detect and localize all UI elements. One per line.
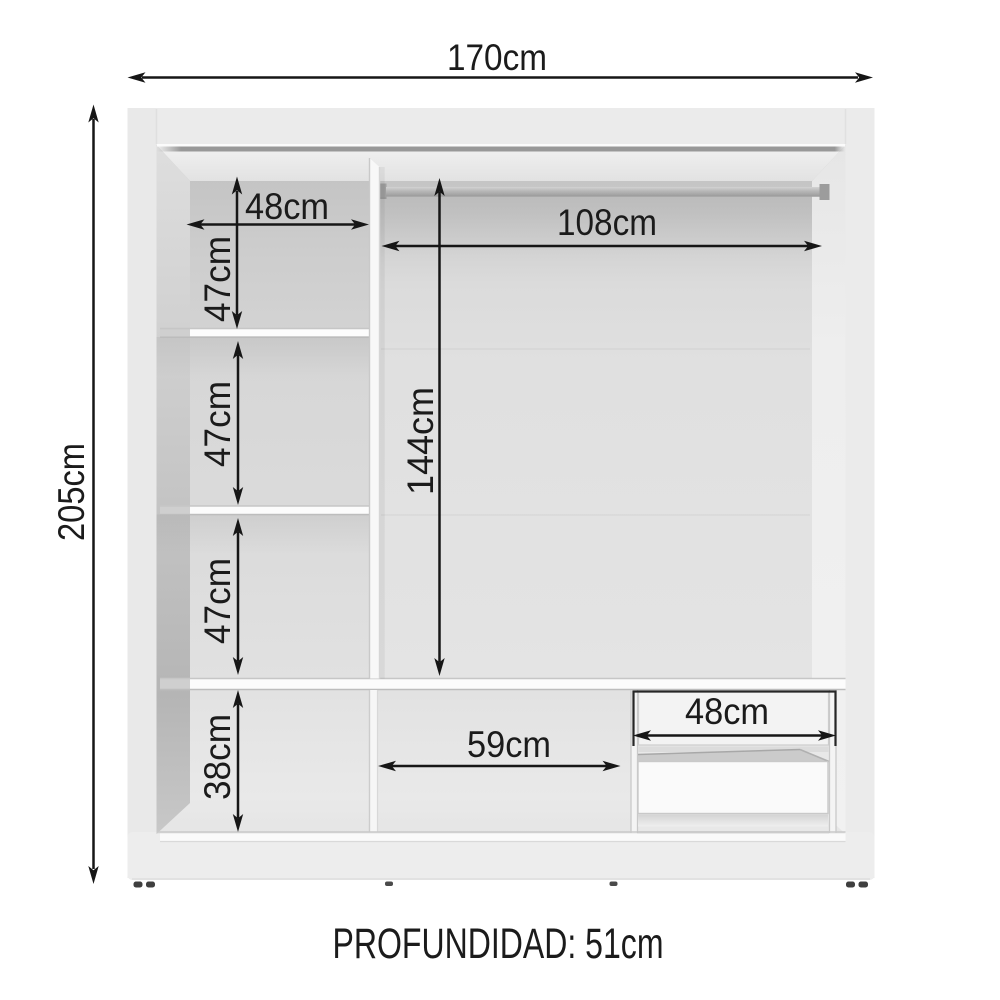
svg-text:PROFUNDIDAD: 51cm: PROFUNDIDAD: 51cm	[333, 920, 664, 968]
svg-text:144cm: 144cm	[400, 387, 441, 495]
svg-text:108cm: 108cm	[557, 202, 657, 243]
svg-text:48cm: 48cm	[685, 691, 769, 732]
svg-text:205cm: 205cm	[51, 443, 92, 541]
svg-text:59cm: 59cm	[467, 724, 551, 765]
svg-text:47cm: 47cm	[197, 381, 238, 467]
svg-text:48cm: 48cm	[245, 186, 329, 227]
svg-text:47cm: 47cm	[197, 558, 238, 644]
svg-text:170cm: 170cm	[447, 37, 547, 78]
svg-text:38cm: 38cm	[197, 714, 238, 800]
svg-text:47cm: 47cm	[197, 236, 238, 322]
